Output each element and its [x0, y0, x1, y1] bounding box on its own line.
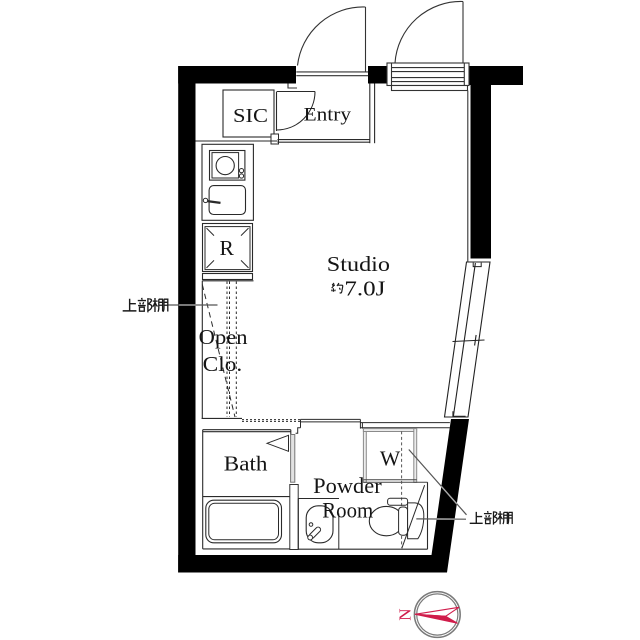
svg-text:Bath: Bath	[224, 452, 268, 476]
svg-text:Powder: Powder	[313, 473, 382, 498]
svg-text:Open: Open	[199, 325, 248, 349]
svg-text:R: R	[220, 236, 235, 260]
svg-text:Clo.: Clo.	[203, 352, 243, 376]
svg-text:Room: Room	[322, 497, 373, 522]
svg-text:SIC: SIC	[233, 105, 268, 127]
svg-text:W: W	[380, 447, 401, 471]
svg-text:Entry: Entry	[304, 104, 352, 125]
svg-text:7.0J: 7.0J	[344, 276, 385, 300]
svg-text:Studio: Studio	[327, 252, 390, 276]
svg-text:N: N	[396, 609, 415, 621]
